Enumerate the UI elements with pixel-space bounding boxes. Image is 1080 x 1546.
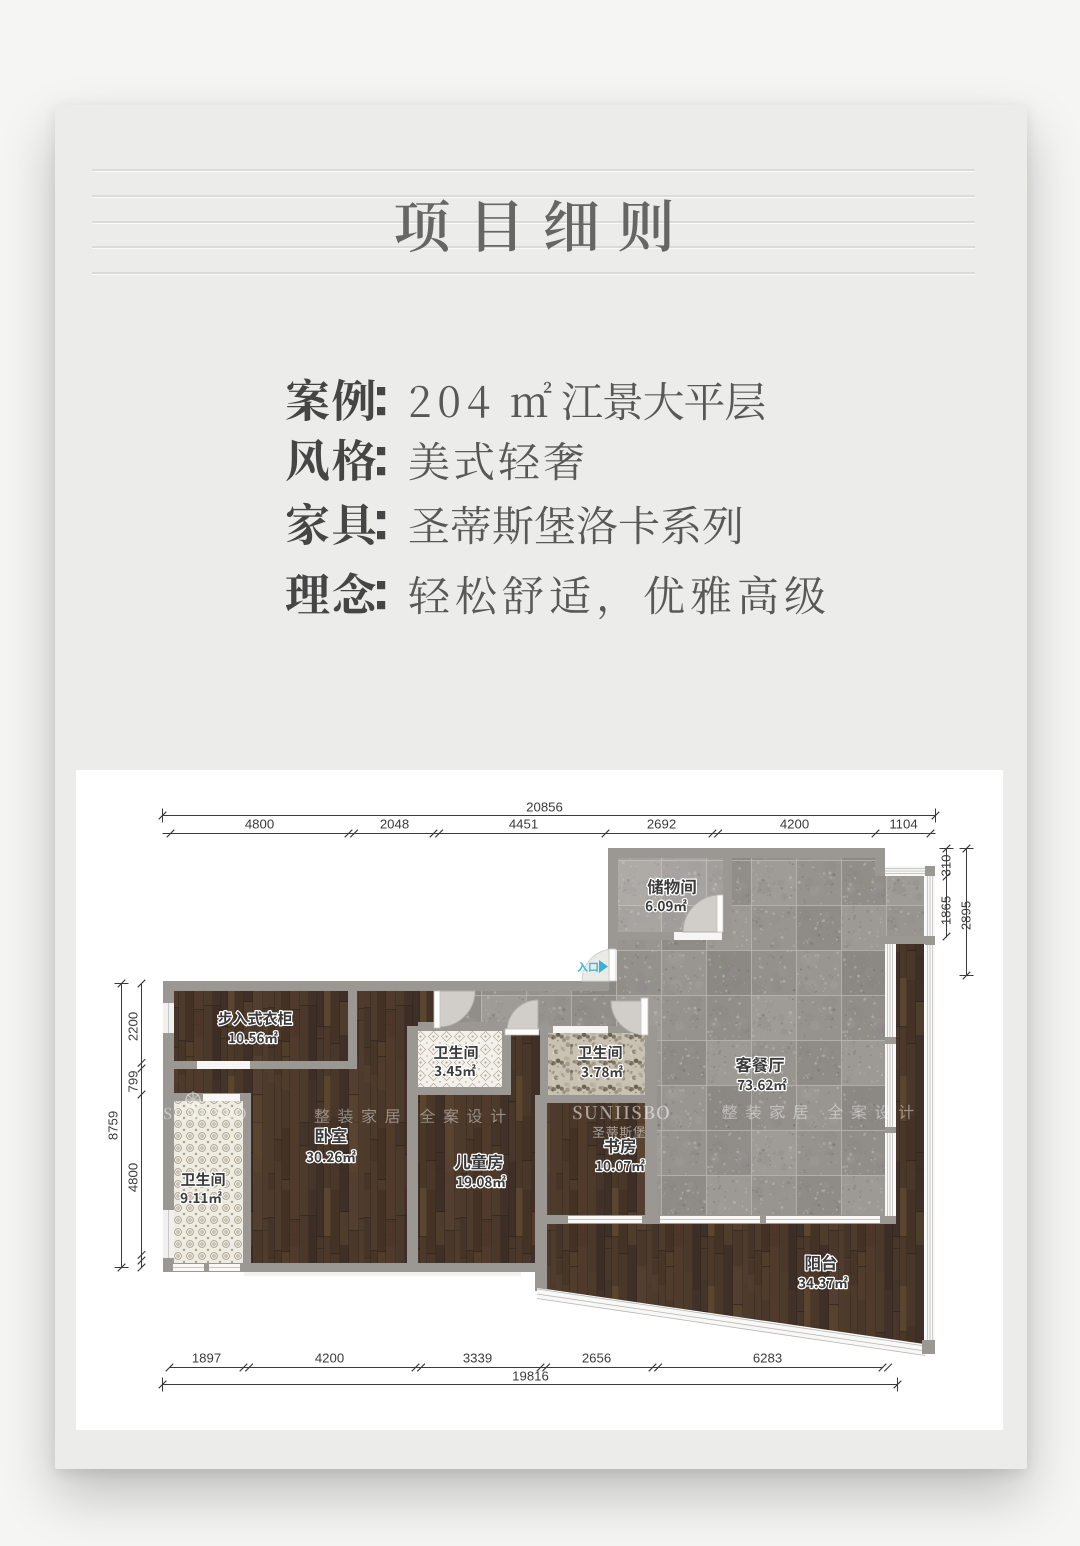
svg-text:2692: 2692 <box>647 817 676 832</box>
svg-text:19816: 19816 <box>512 1369 549 1384</box>
svg-text:3339: 3339 <box>463 1351 492 1366</box>
svg-text:4200: 4200 <box>315 1351 344 1366</box>
svg-text:4451: 4451 <box>509 817 538 832</box>
svg-text:2895: 2895 <box>959 901 974 930</box>
svg-text:20856: 20856 <box>526 800 563 815</box>
svg-text:310: 310 <box>939 854 954 876</box>
svg-text:6283: 6283 <box>753 1351 782 1366</box>
svg-text:2200: 2200 <box>126 1012 141 1041</box>
svg-text:4800: 4800 <box>126 1163 141 1192</box>
svg-text:2656: 2656 <box>582 1351 611 1366</box>
svg-text:1865: 1865 <box>939 896 954 925</box>
svg-text:4800: 4800 <box>245 817 274 832</box>
svg-text:1104: 1104 <box>889 817 917 832</box>
svg-text:8759: 8759 <box>106 1111 121 1140</box>
svg-text:799: 799 <box>126 1070 141 1092</box>
svg-text:1897: 1897 <box>192 1351 221 1366</box>
svg-text:4200: 4200 <box>780 817 809 832</box>
svg-text:2048: 2048 <box>380 817 409 832</box>
